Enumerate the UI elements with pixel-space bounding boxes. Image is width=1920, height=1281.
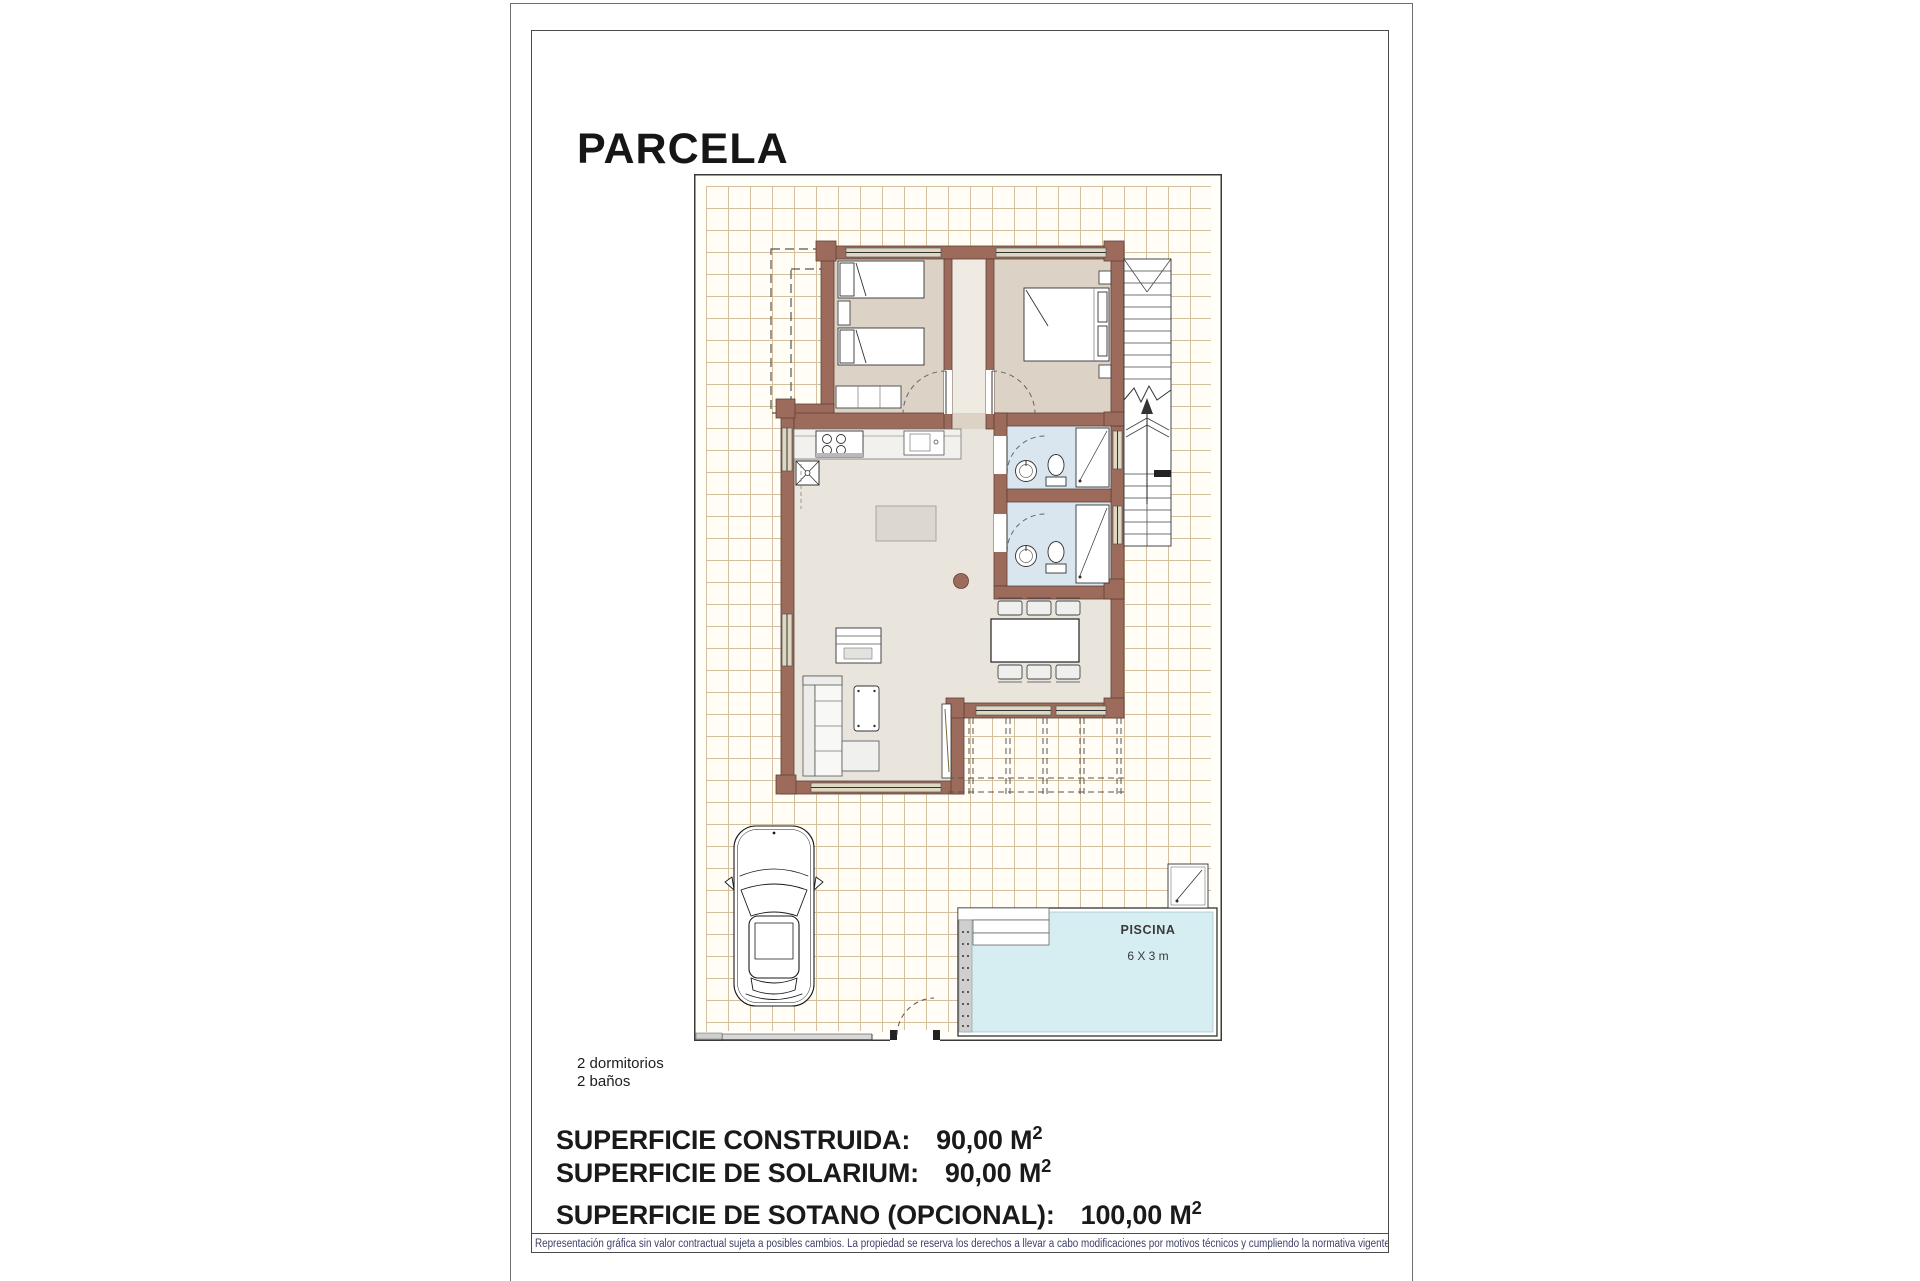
disclaimer-bar: Representación gráfica sin valor contrac… xyxy=(531,1233,1389,1253)
area-basement: SUPERFICIE DE SOTANO (OPCIONAL):100,00 M… xyxy=(556,1197,1202,1231)
page-title: PARCELA xyxy=(577,125,789,174)
staircase xyxy=(1124,259,1171,546)
area-built-unit: M xyxy=(1010,1125,1032,1155)
area-solarium-unit: M xyxy=(1019,1158,1041,1188)
disclaimer-text: Representación gráfica sin valor contrac… xyxy=(535,1238,1389,1250)
room-summary: 2 dormitorios 2 baños xyxy=(577,1055,664,1091)
area-solarium: SUPERFICIE DE SOLARIUM:90,00 M2 xyxy=(556,1155,1051,1189)
pergola-dashed xyxy=(948,718,1124,796)
pool: PISCINA 6 X 3 m xyxy=(958,908,1217,1036)
area-built-label: SUPERFICIE CONSTRUIDA: xyxy=(556,1125,910,1155)
outdoor-shower-pad xyxy=(1168,864,1208,908)
area-solarium-label: SUPERFICIE DE SOLARIUM: xyxy=(556,1158,919,1188)
floor-plan-drawing: PISCINA 6 X 3 m xyxy=(694,174,1222,1041)
area-built-value: 90,00 xyxy=(936,1125,1003,1155)
area-built-sup: 2 xyxy=(1032,1122,1042,1143)
summary-bathrooms: 2 baños xyxy=(577,1073,664,1091)
pool-label: PISCINA xyxy=(1121,923,1176,937)
area-basement-label: SUPERFICIE DE SOTANO (OPCIONAL): xyxy=(556,1200,1055,1230)
dining-set xyxy=(991,598,1080,682)
area-built: SUPERFICIE CONSTRUIDA:90,00 M2 xyxy=(556,1122,1042,1156)
screenshot-root: { "page": { "title": "PARCELA" }, "plan"… xyxy=(0,0,1920,1280)
summary-bedrooms: 2 dormitorios xyxy=(577,1055,664,1073)
column xyxy=(954,574,969,589)
driveway-and-gate xyxy=(696,998,940,1041)
area-solarium-sup: 2 xyxy=(1041,1155,1051,1176)
area-basement-value: 100,00 xyxy=(1081,1200,1162,1230)
area-solarium-value: 90,00 xyxy=(945,1158,1012,1188)
site-plan: PISCINA 6 X 3 m xyxy=(694,174,1222,1041)
car xyxy=(725,826,823,1006)
pool-size-label: 6 X 3 m xyxy=(1127,949,1168,963)
area-basement-unit: M xyxy=(1169,1200,1191,1230)
area-basement-sup: 2 xyxy=(1192,1197,1202,1218)
document-page: PARCELA xyxy=(510,3,1413,1281)
